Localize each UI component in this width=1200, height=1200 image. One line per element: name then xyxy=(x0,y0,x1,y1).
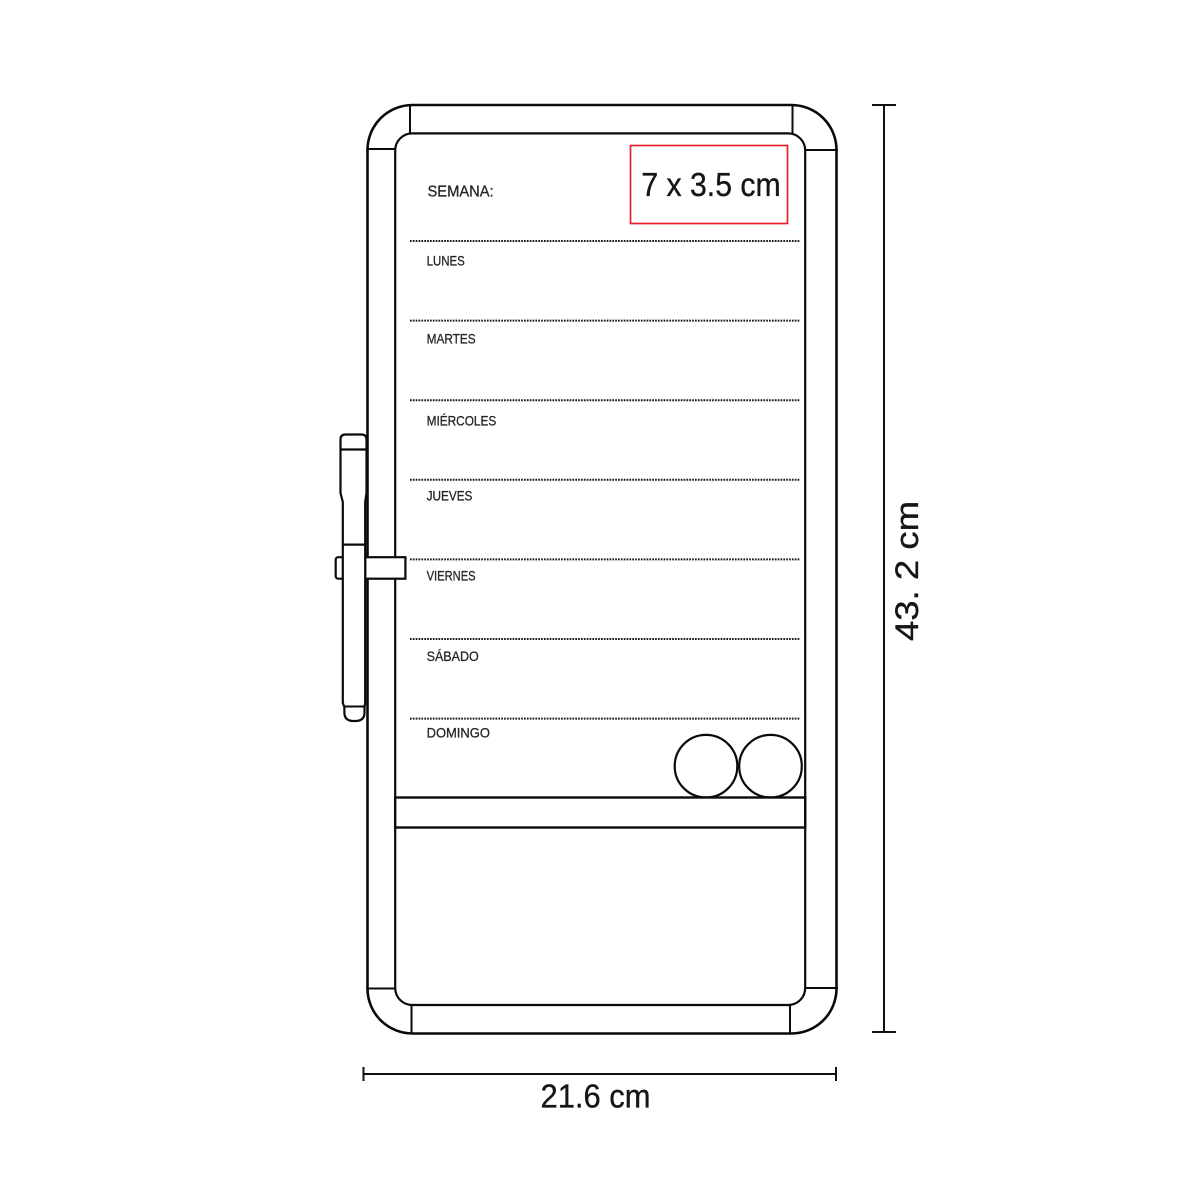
svg-text:VIERNES: VIERNES xyxy=(427,569,476,584)
svg-text:LUNES: LUNES xyxy=(427,253,465,268)
svg-text:21.6 cm: 21.6 cm xyxy=(541,1078,651,1115)
svg-text:43. 2 cm: 43. 2 cm xyxy=(888,501,925,641)
svg-text:MARTES: MARTES xyxy=(427,332,476,347)
svg-text:DOMINGO: DOMINGO xyxy=(427,726,491,741)
svg-text:JUEVES: JUEVES xyxy=(427,489,473,504)
svg-text:MIÉRCOLES: MIÉRCOLES xyxy=(427,413,497,429)
svg-text:SÁBADO: SÁBADO xyxy=(427,648,479,664)
svg-text:SEMANA:: SEMANA: xyxy=(428,183,494,200)
svg-text:7 x 3.5 cm: 7 x 3.5 cm xyxy=(641,166,780,203)
